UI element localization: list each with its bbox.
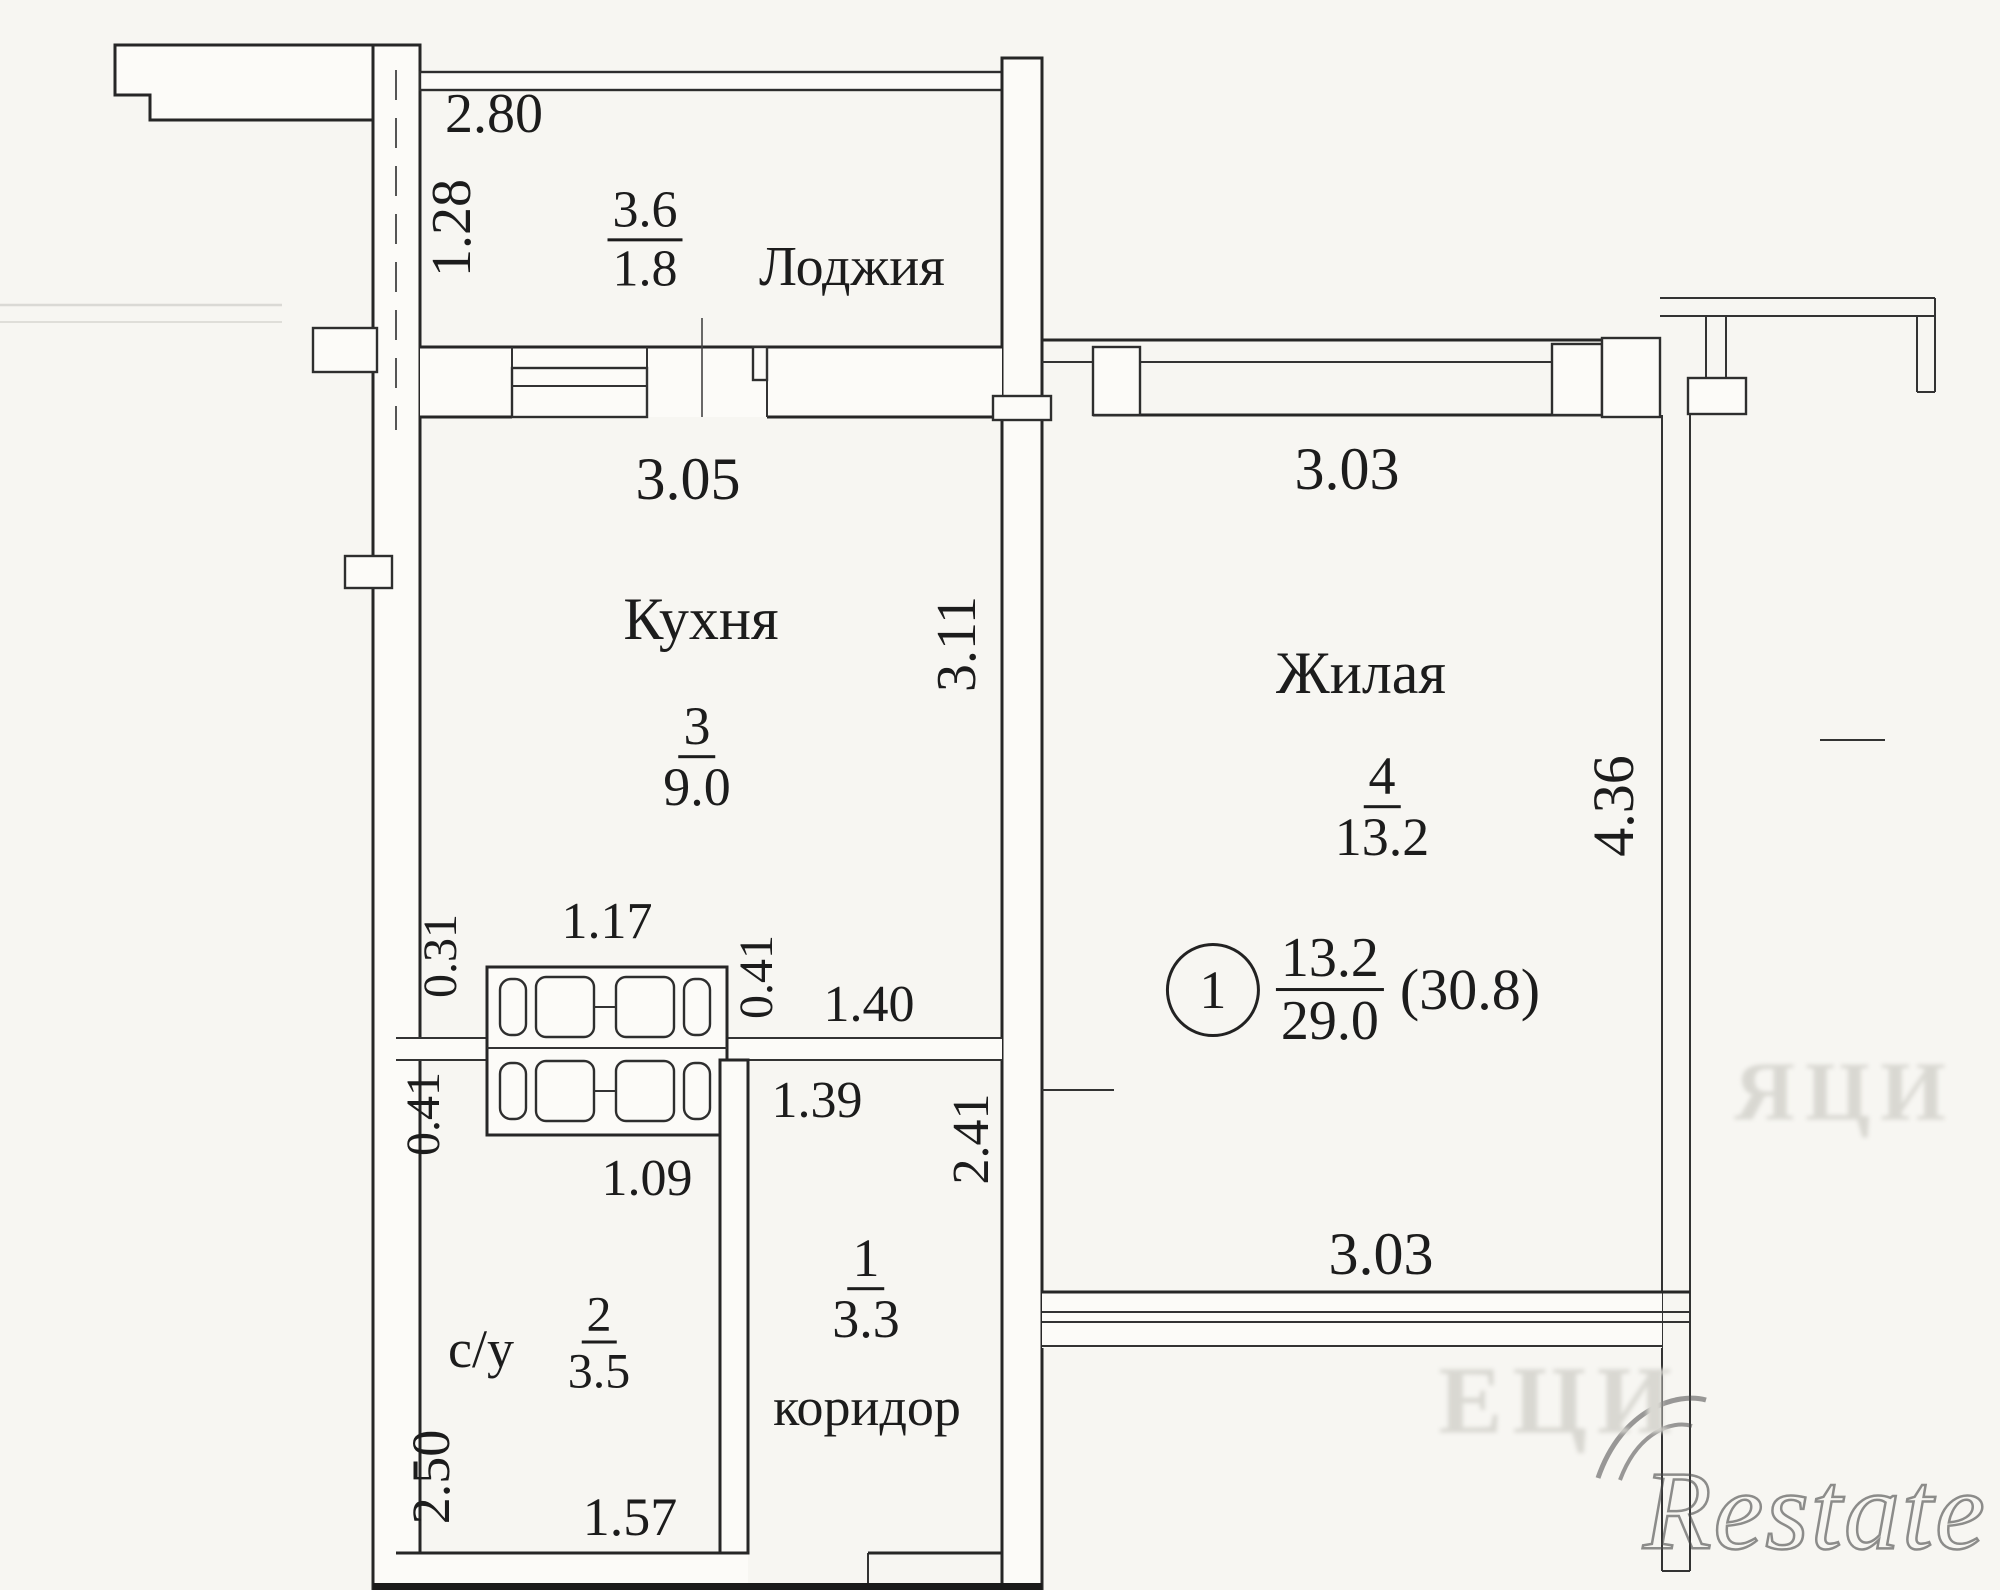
dim-0-41-left: 0.41	[400, 1072, 448, 1156]
living-number: 4	[1364, 747, 1401, 808]
dim-3-11: 3.11	[929, 596, 985, 692]
dim-0-41-right: 0.41	[733, 935, 781, 1019]
watermark-restate: Restate	[1643, 1448, 1987, 1577]
loggia-right-wall	[1002, 58, 1042, 417]
corner-block	[1602, 338, 1660, 417]
scan-artifact-lines	[0, 305, 282, 322]
living-window-wall	[1042, 338, 1660, 417]
flat-number-circle: 1	[1166, 943, 1260, 1037]
dim-1-17: 1.17	[562, 896, 653, 948]
kitchen-number-area: 3 9.0	[663, 697, 731, 817]
window-pier-right	[1552, 344, 1602, 415]
flat-overall-area: (30.8)	[1400, 961, 1540, 1019]
kitchen-area: 9.0	[663, 759, 731, 817]
dim-3-03-top: 3.03	[1295, 439, 1400, 499]
bottom-wall	[373, 1553, 1042, 1590]
parapet-stub	[1688, 378, 1746, 414]
left-pilaster-upper	[313, 328, 377, 372]
loggia-area-fraction: 3.6 1.8	[608, 182, 683, 297]
dim-3-05: 3.05	[636, 449, 741, 509]
dim-1-28: 1.28	[424, 179, 480, 277]
dim-3-03-bottom: 3.03	[1329, 1224, 1434, 1284]
loggia-area-over: 3.6	[608, 182, 683, 241]
corridor-number-area: 1 3.3	[832, 1229, 900, 1349]
dim-1-57: 1.57	[583, 1490, 678, 1544]
faint-watermark-fragment: ЯЦИ	[1734, 1044, 1955, 1141]
floor-plan: ЕЦИ ЯЦИ 2.80 1.28 3.05 3.11 3.03 4.36 3.…	[0, 0, 2000, 1590]
living-bottom-wall	[1042, 1292, 1690, 1348]
room-label-bathroom: с/у	[448, 1322, 514, 1376]
dim-0-31: 0.31	[417, 914, 465, 998]
room-label-corridor: коридор	[773, 1380, 961, 1434]
top-left-wall-stub	[115, 45, 373, 120]
corridor-area: 3.3	[832, 1291, 900, 1349]
left-pilaster-lower	[345, 556, 392, 588]
kitchen-living-wall	[1002, 417, 1042, 1590]
flat-total-area: 29.0	[1281, 992, 1379, 1052]
faint-watermark-fragment: ЕЦИ	[1438, 1345, 1681, 1456]
corridor-number: 1	[848, 1229, 885, 1290]
dim-2-41: 2.41	[946, 1094, 998, 1185]
room-label-loggia: Лоджия	[759, 239, 945, 295]
right-parapet	[1660, 298, 1935, 414]
dim-1-09: 1.09	[602, 1153, 693, 1205]
flat-living-area: 13.2	[1276, 928, 1384, 991]
dim-2-50: 2.50	[404, 1430, 458, 1525]
floor-plan-drawing	[0, 0, 2000, 1590]
loggia-kitchen-wall	[420, 318, 1002, 417]
window-pier-left	[1093, 347, 1140, 415]
bathroom-area: 3.5	[568, 1344, 631, 1398]
loggia-area-under: 1.8	[613, 242, 678, 298]
room-label-kitchen: Кухня	[623, 589, 778, 649]
dim-1-40: 1.40	[824, 979, 915, 1031]
living-number-area: 4 13.2	[1335, 747, 1430, 867]
kitchen-window	[512, 368, 647, 417]
door-jamb-step	[753, 347, 767, 380]
room-label-living: Жилая	[1276, 643, 1446, 703]
dim-1-39: 1.39	[772, 1075, 863, 1127]
bathroom-number-area: 2 3.5	[568, 1287, 631, 1398]
dim-2-80: 2.80	[445, 86, 543, 142]
wall-cap	[993, 396, 1051, 420]
dim-4-36: 4.36	[1585, 755, 1643, 857]
flat-area-fraction: 13.2 29.0	[1276, 928, 1384, 1052]
living-area: 13.2	[1335, 809, 1430, 867]
bathroom-number: 2	[582, 1287, 617, 1344]
bathroom-right-wall	[720, 1060, 748, 1553]
kitchen-number: 3	[679, 697, 716, 758]
flat-summary: 1 13.2 29.0 (30.8)	[1166, 928, 1540, 1052]
ventilation-block	[487, 967, 727, 1135]
